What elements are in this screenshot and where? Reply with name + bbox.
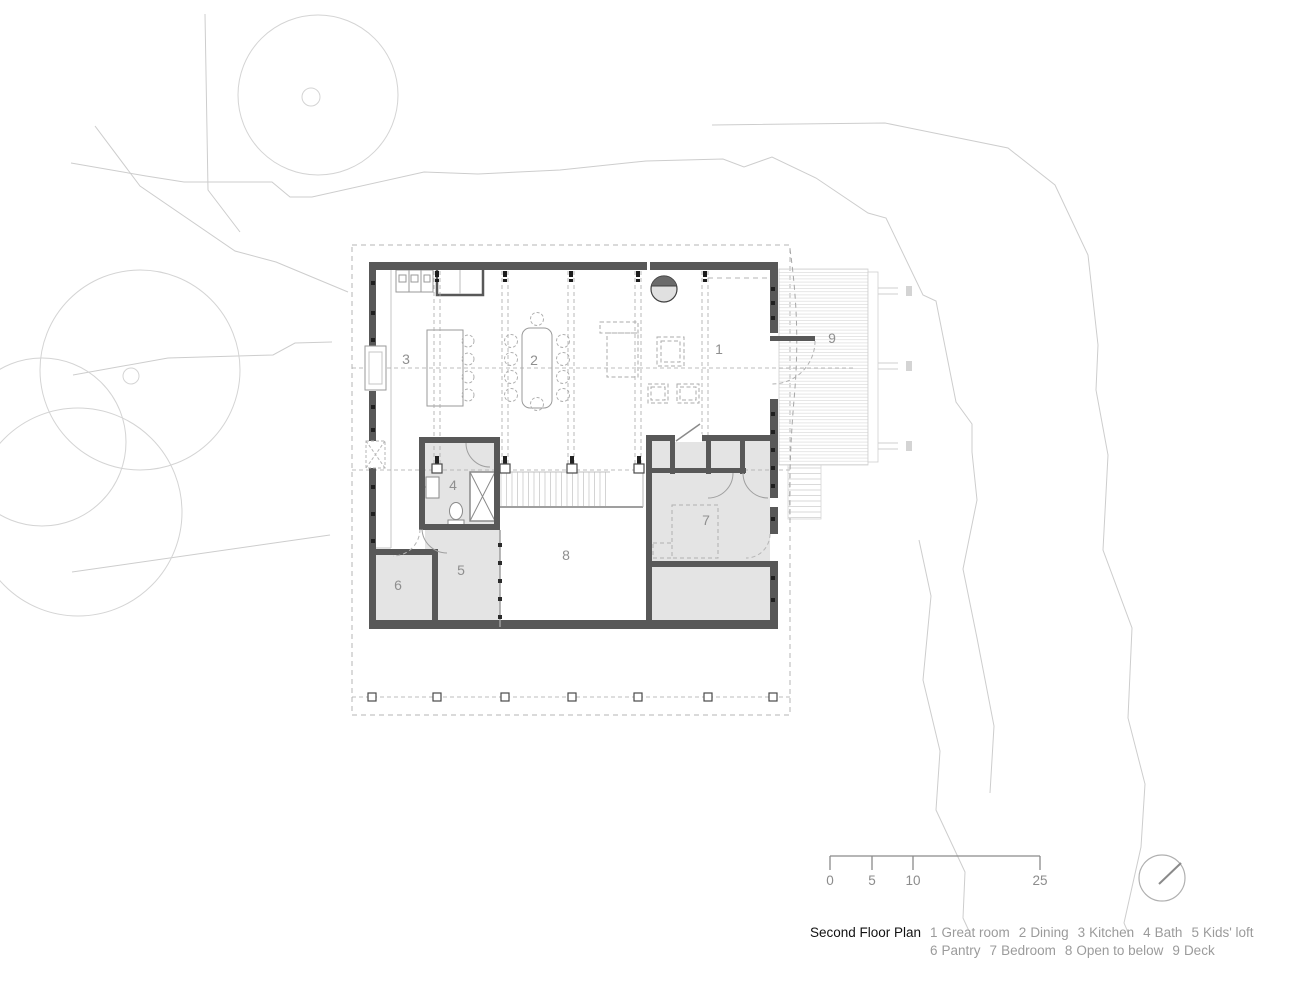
room-number-kitchen: 3 <box>402 351 410 367</box>
room-number-open-to-below: 8 <box>562 547 570 563</box>
scale-bar: 0 5 10 25 <box>826 856 1047 888</box>
toilet <box>450 503 463 520</box>
legend-item-dining: 2Dining <box>1019 925 1069 940</box>
tree-canopy <box>0 408 182 616</box>
legend-item-deck: 9Deck <box>1172 943 1214 958</box>
room-number-pantry: 6 <box>394 577 402 593</box>
legend-item-bath: 4Bath <box>1143 925 1182 940</box>
legend-line-2: 6Pantry 7Bedroom 8Open to below 9Deck <box>930 943 1215 958</box>
scale-label-5: 5 <box>868 873 876 888</box>
bedroom-entry-floor <box>745 441 770 473</box>
legend-number: 5 <box>1191 925 1199 940</box>
room-number-bath: 4 <box>449 477 457 493</box>
terrace-floor <box>652 567 770 620</box>
legend-item-open-to-below: 8Open to below <box>1065 943 1164 958</box>
scale-label-10: 10 <box>905 873 920 888</box>
legend-room-name: Open to below <box>1076 943 1163 958</box>
deck-stair <box>788 465 821 519</box>
legend-number: 8 <box>1065 943 1073 958</box>
counter-edge <box>376 270 391 548</box>
tree-trunk <box>123 368 139 384</box>
legend-number: 1 <box>930 925 938 940</box>
north-arrow-icon <box>1139 855 1185 901</box>
legend-item-kitchen: 3Kitchen <box>1078 925 1135 940</box>
room-number-dining: 2 <box>530 352 538 368</box>
legend-line-1: 1Great room 2Dining 3Kitchen 4Bath 5Kids… <box>930 925 1254 940</box>
great-room-furniture <box>600 322 699 403</box>
room-number-bedroom: 7 <box>702 512 710 528</box>
pantry-floor <box>375 555 432 620</box>
scale-label-0: 0 <box>826 873 834 888</box>
closet-floor <box>652 441 670 468</box>
legend-room-name: Deck <box>1184 943 1215 958</box>
legend-room-name: Bedroom <box>1001 943 1056 958</box>
west-wall-window <box>365 346 386 390</box>
deck-tag-marks <box>906 286 912 451</box>
sink <box>426 477 439 498</box>
tree-canopy <box>0 358 126 526</box>
tree-trunk <box>302 88 320 106</box>
legend-number: 7 <box>990 943 998 958</box>
west-wall-flue <box>366 441 385 468</box>
room-number-kids-loft: 5 <box>457 562 465 578</box>
legend-room-name: Kids' loft <box>1203 925 1254 940</box>
tree-canopy <box>238 15 398 175</box>
closet-floor <box>711 441 740 468</box>
legend-room-name: Great room <box>942 925 1010 940</box>
deck-door-leaf <box>770 336 815 341</box>
floor-plan-sheet: 1 2 3 4 5 6 7 8 9 0 5 10 25 Second Floor… <box>0 0 1294 1000</box>
sofa-back <box>600 322 638 333</box>
sofa-seat <box>607 333 638 377</box>
legend-item-pantry: 6Pantry <box>930 943 981 958</box>
legend-room-name: Dining <box>1030 925 1068 940</box>
legend-number: 6 <box>930 943 938 958</box>
tree-canopy <box>40 270 240 470</box>
stair-open-to-below <box>497 472 643 507</box>
range-appliance <box>437 267 483 295</box>
legend-room-name: Pantry <box>942 943 981 958</box>
legend-number: 4 <box>1143 925 1151 940</box>
room-number-deck: 9 <box>828 330 836 346</box>
legend-item-kids-loft: 5Kids' loft <box>1191 925 1253 940</box>
shower-closet <box>470 472 495 521</box>
legend-room-name: Bath <box>1155 925 1183 940</box>
deck-joist-tags <box>878 288 898 449</box>
floor-plan-drawing: 1 2 3 4 5 6 7 8 9 0 5 10 25 <box>0 0 1294 1000</box>
drawing-title: Second Floor Plan <box>810 925 921 940</box>
legend-item-bedroom: 7Bedroom <box>990 943 1056 958</box>
fireplace <box>651 276 677 302</box>
legend-number: 3 <box>1078 925 1086 940</box>
cooktop <box>396 270 433 292</box>
deck <box>779 249 912 520</box>
site-trees <box>0 15 398 616</box>
legend-number: 9 <box>1172 943 1180 958</box>
legend-item-great-room: 1Great room <box>930 925 1010 940</box>
closet-floor <box>675 441 706 468</box>
legend-number: 2 <box>1019 925 1027 940</box>
legend-room-name: Kitchen <box>1089 925 1134 940</box>
scale-label-25: 25 <box>1032 873 1047 888</box>
bedroom-floor <box>652 473 770 561</box>
room-number-great-room: 1 <box>715 341 723 357</box>
